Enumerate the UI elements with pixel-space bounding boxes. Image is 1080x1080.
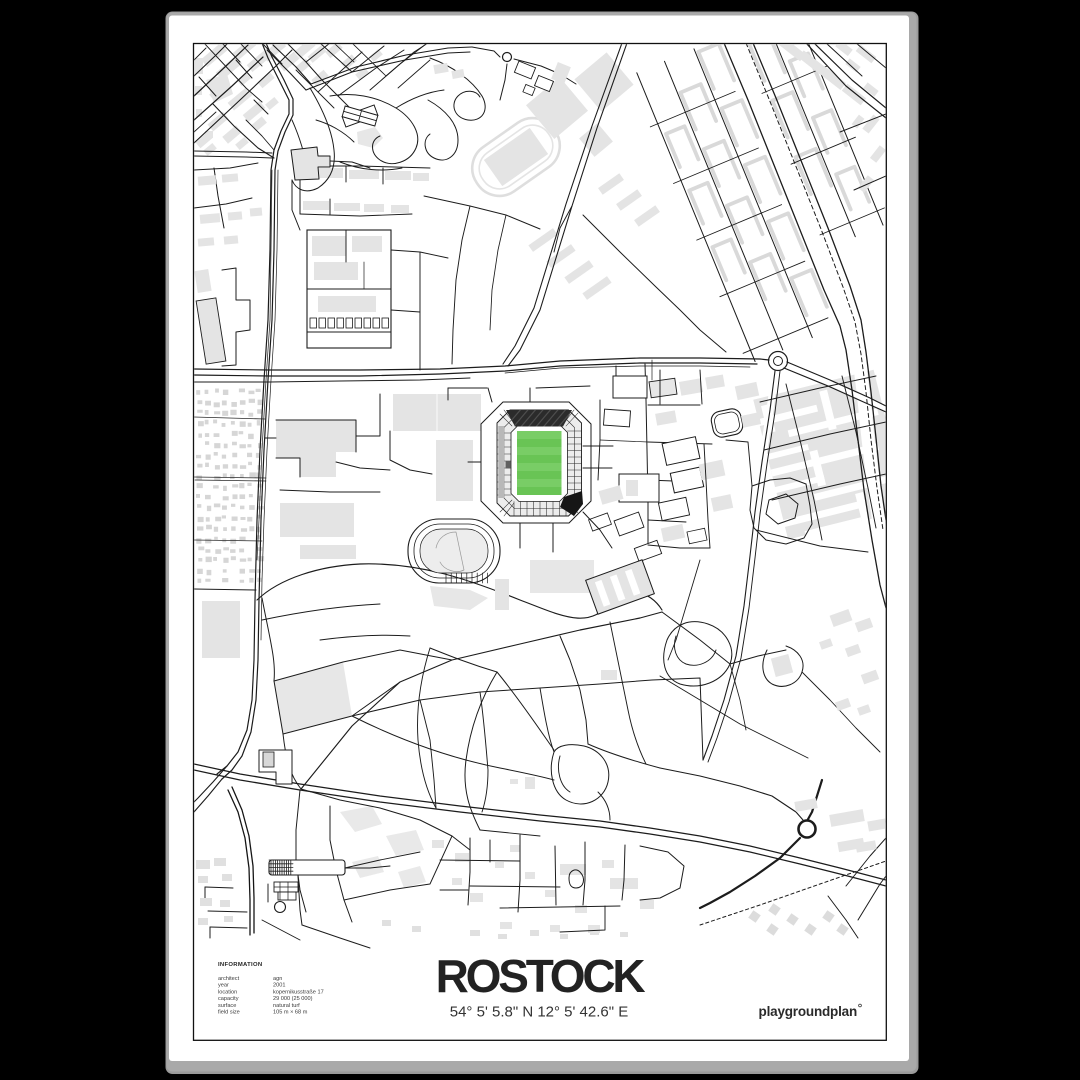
svg-text:agn: agn (273, 976, 282, 982)
svg-text:2001: 2001 (273, 983, 285, 989)
svg-text:natural turf: natural turf (273, 1003, 300, 1009)
svg-text:architect: architect (218, 976, 240, 982)
svg-text:surface: surface (218, 1003, 236, 1009)
svg-text:year: year (218, 983, 229, 989)
svg-text:105 m × 68 m: 105 m × 68 m (273, 1010, 308, 1016)
svg-text:54° 5' 5.8" N 12° 5' 42.6" E: 54° 5' 5.8" N 12° 5' 42.6" E (450, 1004, 628, 1021)
svg-text:INFORMATION: INFORMATION (218, 962, 262, 968)
svg-text:29 000 (25 000): 29 000 (25 000) (273, 996, 313, 1002)
svg-text:field size: field size (218, 1010, 240, 1016)
svg-text:location: location (218, 989, 237, 995)
svg-text:ROSTOCK: ROSTOCK (436, 950, 646, 1002)
svg-text:playgroundplan: playgroundplan (759, 1004, 857, 1019)
svg-text:kopernikusstraße 17: kopernikusstraße 17 (273, 989, 324, 995)
svg-text:capacity: capacity (218, 996, 239, 1002)
